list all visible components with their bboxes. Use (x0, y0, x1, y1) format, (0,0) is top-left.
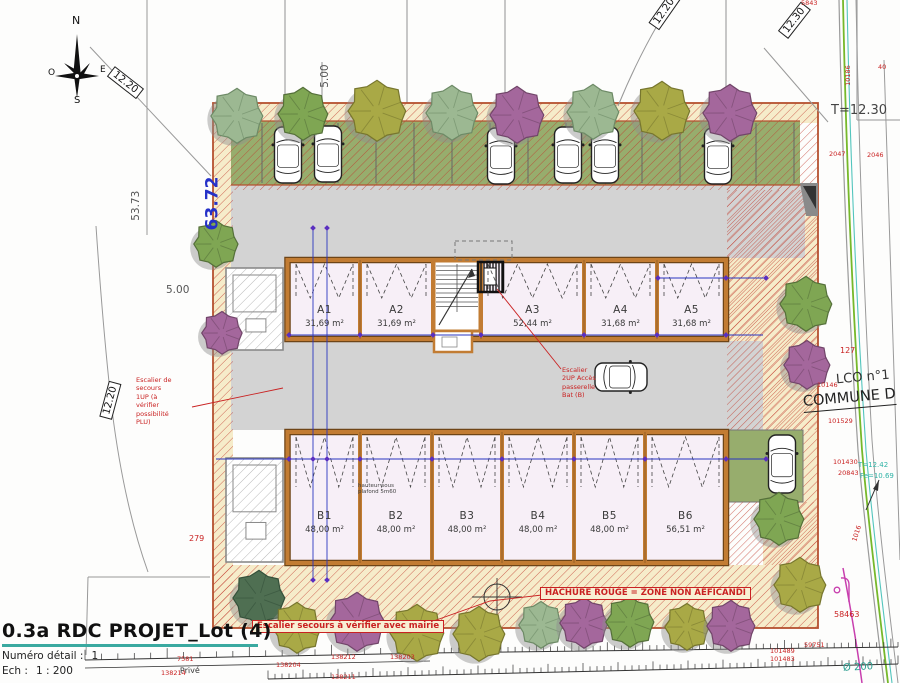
compass-west-label: O (48, 69, 55, 79)
unit-area: 31,68 m² (601, 319, 640, 329)
unit-b-1: B248,00 m² (360, 500, 432, 544)
survey-point-number: 20843 (838, 470, 859, 477)
level-fe-1069: Fe=10.69 (860, 473, 894, 481)
title-underline (2, 644, 258, 647)
unit-name: B6 (678, 510, 693, 522)
note-escalier-secours-mairie: Escalier secours à vérifier avec mairie (252, 620, 444, 633)
unit-area: 48,00 m² (377, 525, 416, 535)
dim-5-00-left: 5.00 (166, 285, 189, 297)
survey-point-number: 2047 (829, 151, 846, 158)
survey-point-number: 279 (189, 535, 204, 544)
survey-point-number: 138203 (390, 654, 415, 661)
level-t-1230: T=12.30 (831, 104, 887, 118)
unit-area: 31,69 m² (377, 319, 416, 329)
detail-number-label: Numéro détail : (2, 650, 83, 662)
unit-name: B5 (602, 510, 617, 522)
unit-name: A4 (613, 304, 628, 316)
unit-area: 56,51 m² (666, 525, 705, 535)
unit-name: A5 (684, 304, 699, 316)
dim-12-20-nw: 12.20 (107, 66, 144, 99)
pipe-diameter-label: Ø 200 (843, 661, 874, 674)
unit-b-5: B656,51 m² (645, 500, 726, 544)
unit-a-1: A231,69 m² (360, 296, 433, 336)
unit-b-4: B548,00 m² (574, 500, 645, 544)
title-block: 0.3a RDC PROJET_Lot (4) Numéro détail :1… (2, 620, 272, 677)
survey-point-number: 10186 (845, 65, 852, 86)
dim-53-73: 53.73 (131, 171, 143, 221)
detail-number-value: 1 (91, 650, 98, 662)
unit-b-2: B348,00 m² (432, 500, 502, 544)
unit-area: 48,00 m² (519, 525, 558, 535)
unit-name: B1 (317, 510, 332, 522)
street-lco-label: LCO n°1 (835, 369, 890, 388)
unit-name: A3 (525, 304, 540, 316)
survey-point-number: 2046 (867, 152, 884, 159)
compass-east-label: E (100, 66, 106, 76)
dim-12-30-ne: 12.30 (778, 2, 811, 39)
survey-point-number: 127 (840, 347, 855, 356)
note-ceiling-height: hauteur sous plafond 5m60 (358, 483, 396, 495)
legend-zone-non-aedificandi: HACHURE ROUGE = ZONE NON AEFICANDI (540, 587, 751, 600)
survey-point-number: 101529 (828, 418, 853, 425)
scale-label: Ech : (2, 665, 28, 677)
unit-a-3: A431,68 m² (584, 296, 657, 336)
scale-value: 1 : 200 (36, 665, 73, 677)
unit-name: A2 (389, 304, 404, 316)
dim-5-00-top: 5.00 (320, 56, 332, 88)
survey-point-number: 59751 (804, 642, 825, 649)
survey-point-number: 101483 (770, 656, 795, 663)
compass-south-label: S (74, 95, 80, 106)
site-plan-canvas: N O E S 53.73 63.72 12.20 12.20 12.20 12… (0, 0, 900, 683)
unit-area: 31,68 m² (672, 319, 711, 329)
unit-name: B4 (531, 510, 546, 522)
unit-b-3: B448,00 m² (502, 500, 574, 544)
unit-a-2: A352,44 m² (481, 296, 584, 336)
unit-area: 52,44 m² (513, 319, 552, 329)
street-commune-label: COMMUNE D (802, 387, 896, 413)
survey-point-number: 40 (878, 64, 886, 71)
unit-area: 31,69 m² (305, 319, 344, 329)
level-t-1242: T=12.42 (858, 462, 888, 470)
survey-point-number: 101430 (833, 459, 858, 466)
survey-point-number: 138211 (331, 674, 356, 681)
survey-point-number: 1016 (851, 525, 863, 543)
unit-a-4: A531,68 m² (657, 296, 726, 336)
labels-layer: N O E S 53.73 63.72 12.20 12.20 12.20 12… (0, 0, 900, 683)
compass-north-label: N (72, 15, 80, 27)
survey-point-number: 138214 (161, 670, 186, 677)
unit-area: 48,00 m² (305, 525, 344, 535)
unit-name: A1 (317, 304, 332, 316)
unit-a-0: A131,69 m² (289, 296, 360, 336)
survey-point-number: 138204 (276, 662, 301, 669)
dim-12-20-top: 12.20 (648, 0, 680, 30)
unit-area: 48,00 m² (590, 525, 629, 535)
survey-point-number: 58463 (834, 611, 859, 620)
survey-point-number: 10146 (817, 382, 838, 389)
note-escalier-secours-plu: Escalier de secours 1UP (à vérifier poss… (136, 376, 172, 427)
dim-63-72: 63.72 (204, 176, 223, 230)
survey-point-number: 7581 (177, 656, 194, 663)
survey-point-number: 138212 (331, 654, 356, 661)
survey-point-number: 5843 (801, 0, 818, 7)
unit-name: B2 (389, 510, 404, 522)
unit-b-0: B148,00 m² (289, 500, 360, 544)
drawing-title: 0.3a RDC PROJET_Lot (4) (2, 620, 272, 642)
note-escalier-2up: Escalier 2UP Accès passerelle Bat (B) (562, 366, 596, 400)
unit-area: 48,00 m² (448, 525, 487, 535)
unit-name: B3 (460, 510, 475, 522)
dim-12-20-west: 12.20 (99, 381, 121, 420)
